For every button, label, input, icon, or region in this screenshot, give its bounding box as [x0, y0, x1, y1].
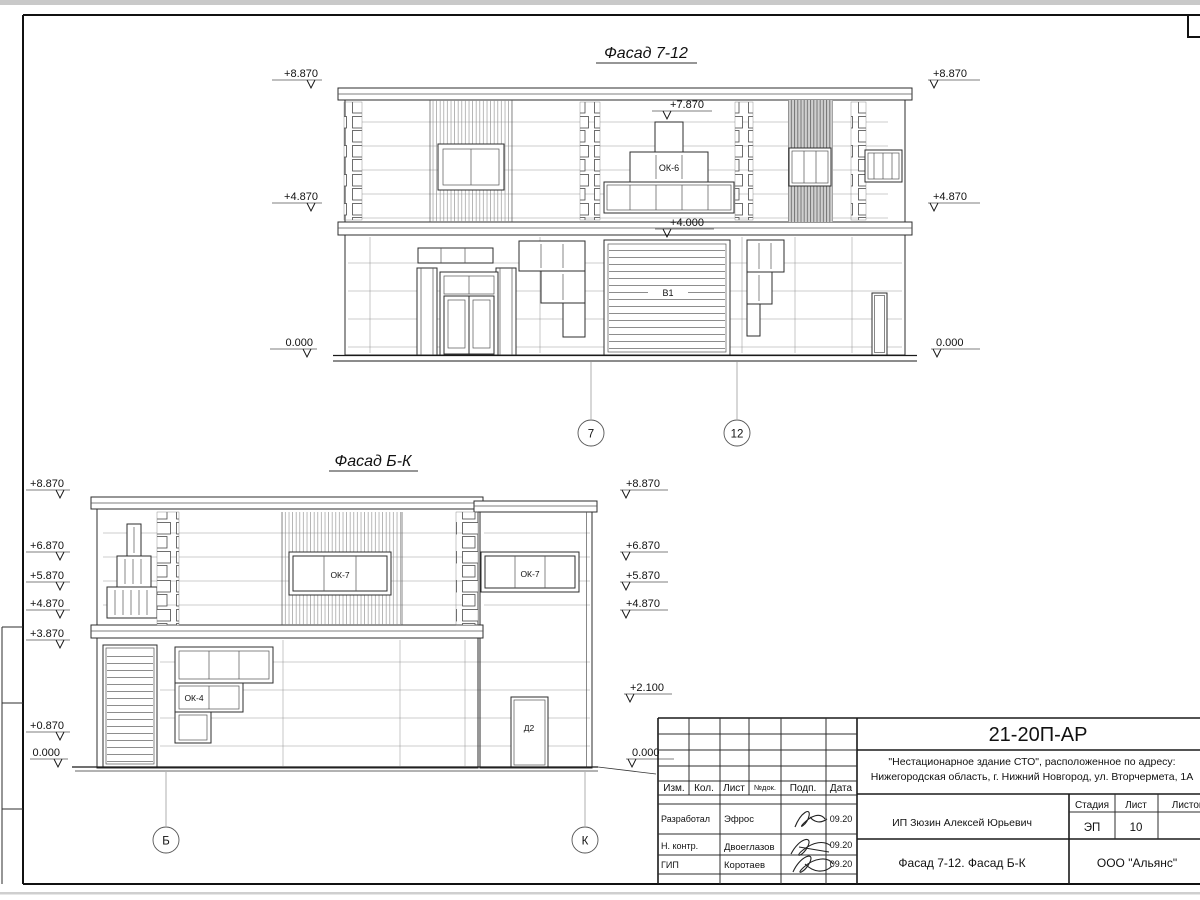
- window-ok7-2-label: ОК-7: [520, 569, 539, 579]
- scan-top-edge: [0, 0, 1200, 5]
- window-ok7-1-label: ОК-7: [330, 570, 349, 580]
- svg-text:+6.870: +6.870: [626, 540, 660, 552]
- svg-text:+8.870: +8.870: [626, 478, 660, 490]
- client: ИП Зюзин Алексей Юрьевич: [892, 817, 1032, 829]
- narrow-window-right: [872, 293, 887, 355]
- window-ok4: ОК-4: [175, 647, 273, 743]
- sheet-frame: [23, 15, 1200, 884]
- stage-value: ЭП: [1084, 822, 1101, 834]
- entrance-group: [417, 248, 516, 355]
- svg-text:+5.870: +5.870: [626, 570, 660, 582]
- door-d2: Д2: [511, 697, 548, 768]
- axis-marker-k: К: [572, 772, 598, 853]
- row2-name: Двоеглазов: [724, 842, 775, 853]
- axis-marker-b: Б: [153, 772, 179, 853]
- stage-label: Стадия: [1075, 800, 1109, 811]
- col-data: Дата: [830, 783, 853, 794]
- row1-role: Разработал: [661, 814, 710, 824]
- louver-band-window: [430, 100, 512, 222]
- window-ok4-label: ОК-4: [184, 693, 203, 703]
- sheets-label: Листов: [1172, 800, 1200, 811]
- axis-marker-7: 7: [578, 362, 604, 446]
- svg-text:+4.870: +4.870: [626, 598, 660, 610]
- svg-text:0.000: 0.000: [32, 747, 60, 759]
- svg-text:+8.870: +8.870: [933, 68, 967, 80]
- facade-7-12: Фасад 7-12: [270, 45, 980, 446]
- row1-date: 09.20: [830, 814, 853, 824]
- svg-text:0.000: 0.000: [936, 337, 964, 349]
- window-ok6: ОК-6: [604, 122, 734, 213]
- facade-drawing-svg: Фасад 7-12: [0, 0, 1200, 900]
- facade-b-k: Фасад Б-К: [26, 453, 674, 853]
- louver-band-ok7: ОК-7: [282, 512, 402, 625]
- description-line1: "Нестационарное здание СТО", расположенн…: [888, 756, 1175, 768]
- col-list: Лист: [723, 783, 745, 794]
- window-ok6-label: ОК-6: [659, 163, 679, 173]
- door-d2-label: Д2: [524, 723, 535, 733]
- level-marks-top-left: +8.870 +4.870 0.000: [270, 68, 322, 357]
- facade-bottom-title: Фасад Б-К: [335, 453, 414, 470]
- doc-number: 21-20П-АР: [989, 724, 1088, 746]
- svg-text:7: 7: [588, 429, 594, 441]
- svg-text:+4.000: +4.000: [670, 217, 704, 229]
- drawing-sheet: Фасад 7-12: [0, 0, 1200, 900]
- stepped-window-left: [519, 241, 585, 337]
- row2-date: 09.20: [830, 840, 853, 850]
- stair-window: [107, 524, 157, 618]
- left-edge-boxes: [2, 627, 23, 884]
- gate-v1: В1: [604, 240, 730, 355]
- svg-text:+8.870: +8.870: [30, 478, 64, 490]
- gate-v1-label: В1: [662, 288, 673, 298]
- level-marks-top-right: +8.870 +4.870 0.000: [928, 68, 980, 357]
- svg-text:+7.870: +7.870: [670, 99, 704, 111]
- stepped-window-right: [747, 240, 784, 336]
- dark-louver-band-window: [788, 100, 833, 222]
- level-marks-bottom-left: +8.870 +6.870 +5.870 +4.870 +3.870 +0.87…: [26, 478, 70, 767]
- svg-text:+3.870: +3.870: [30, 628, 64, 640]
- col-ndoc: №док.: [754, 783, 776, 792]
- svg-text:0.000: 0.000: [632, 747, 660, 759]
- title-block: Изм. Кол. Лист №док. Подп. Дата Разработ…: [658, 718, 1200, 884]
- svg-text:Б: Б: [162, 836, 170, 848]
- col-kol: Кол.: [694, 783, 714, 794]
- description-line2: Нижегородская область, г. Нижний Новгоро…: [871, 771, 1194, 783]
- svg-text:0.000: 0.000: [285, 337, 313, 349]
- row1-name: Эфрос: [724, 814, 754, 825]
- svg-text:К: К: [582, 836, 589, 848]
- facade-top-floor-band: [338, 222, 912, 235]
- row3-date: 09.20: [830, 859, 853, 869]
- corner-window-top: [865, 150, 902, 182]
- level-marks-bottom-right: +8.870 +6.870 +5.870 +4.870 +2.100 0.000: [620, 478, 674, 767]
- svg-text:+4.870: +4.870: [284, 191, 318, 203]
- axis-marker-12: 12: [724, 362, 750, 446]
- level-mark-7870: +7.870: [652, 99, 712, 119]
- svg-text:+4.870: +4.870: [30, 598, 64, 610]
- svg-text:+4.870: +4.870: [933, 191, 967, 203]
- scan-bottom-edge: [0, 892, 1200, 895]
- sheet-value: 10: [1130, 822, 1143, 834]
- signature-strokes: [791, 812, 833, 873]
- company: ООО "Альянс": [1097, 856, 1177, 870]
- row3-role: ГИП: [661, 860, 679, 870]
- window-ok7-2: ОК-7: [481, 552, 579, 592]
- svg-text:+5.870: +5.870: [30, 570, 64, 582]
- row2-role: Н. контр.: [661, 841, 698, 851]
- row3-name: Коротаев: [724, 860, 765, 871]
- facade-top-title: Фасад 7-12: [604, 45, 688, 62]
- rollup-gate-bottom: [103, 645, 157, 767]
- svg-text:+2.100: +2.100: [630, 682, 664, 694]
- svg-text:+0.870: +0.870: [30, 720, 64, 732]
- svg-text:+6.870: +6.870: [30, 540, 64, 552]
- svg-text:+8.870: +8.870: [284, 68, 318, 80]
- frame-corner-box: [1188, 15, 1200, 37]
- sheet-title: Фасад 7-12. Фасад Б-К: [898, 856, 1025, 870]
- sheet-label: Лист: [1125, 800, 1147, 811]
- svg-text:12: 12: [731, 429, 744, 441]
- col-podp: Подп.: [790, 783, 817, 794]
- col-izm: Изм.: [663, 783, 684, 794]
